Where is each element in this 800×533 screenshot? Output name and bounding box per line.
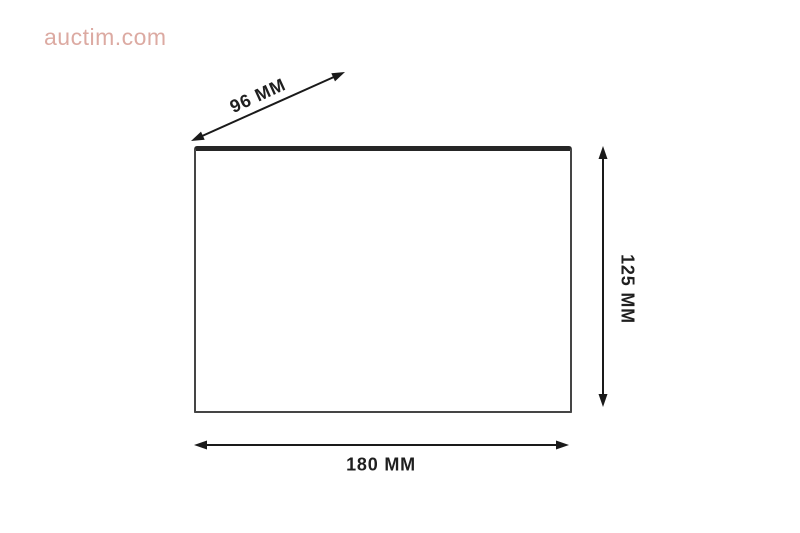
dimension-label-width: 180 MM: [346, 455, 416, 476]
width-dimension-arrow: [194, 441, 569, 450]
height-dimension-arrow: [599, 146, 608, 407]
dimension-label-height: 125 MM: [617, 254, 638, 324]
dimension-diagram: auctim.com 96 MM 125 MM 180 MM: [0, 0, 800, 533]
dimension-arrows: [0, 0, 800, 533]
